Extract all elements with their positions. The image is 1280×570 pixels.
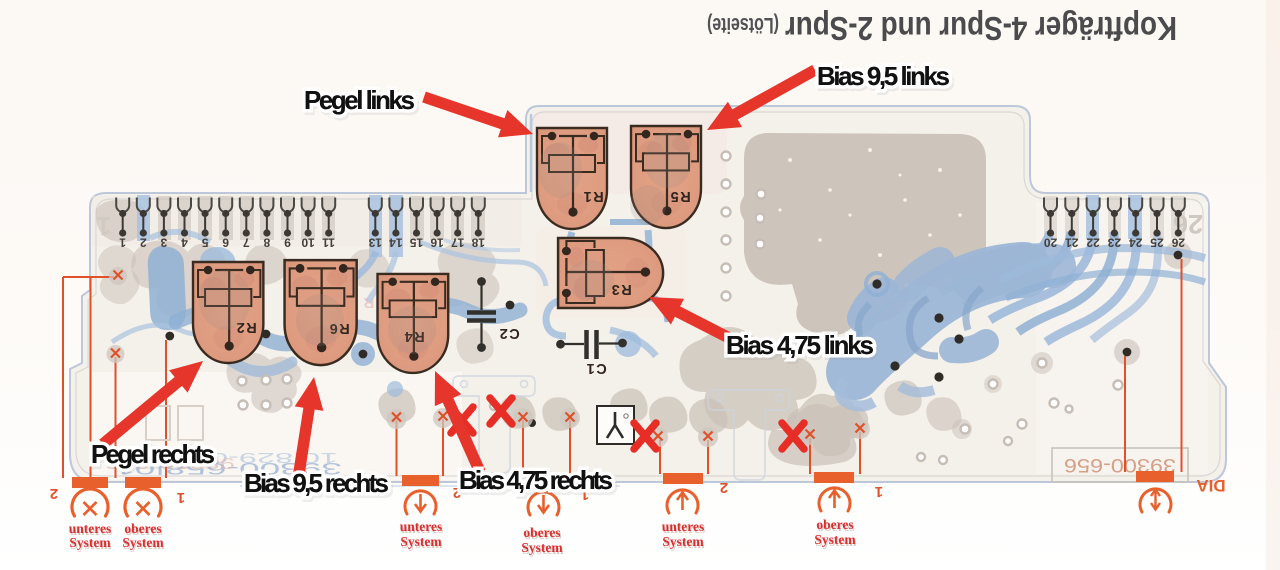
svg-text:2: 2 xyxy=(50,485,58,502)
svg-text:Bias 9,5 links: Bias 9,5 links xyxy=(817,61,950,91)
svg-text:unteres: unteres xyxy=(69,521,112,536)
svg-text:24: 24 xyxy=(1129,236,1143,250)
svg-text:oberes: oberes xyxy=(523,525,560,540)
svg-text:14: 14 xyxy=(389,236,403,250)
svg-text:2: 2 xyxy=(140,236,147,250)
svg-text:5: 5 xyxy=(201,236,208,250)
svg-text:16: 16 xyxy=(430,236,444,250)
svg-text:Bias 9,5 rechts: Bias 9,5 rechts xyxy=(244,468,389,498)
svg-text:3: 3 xyxy=(160,236,167,250)
svg-text:1: 1 xyxy=(96,211,111,241)
svg-text:20: 20 xyxy=(1044,236,1058,250)
svg-text:oberes: oberes xyxy=(124,521,161,536)
svg-text:15: 15 xyxy=(410,236,424,250)
svg-text:26: 26 xyxy=(1171,236,1185,250)
svg-text:C1: C1 xyxy=(585,360,607,376)
svg-text:11: 11 xyxy=(322,236,335,250)
svg-text:(Lötseite): (Lötseite) xyxy=(707,13,779,38)
svg-text:Bias 4,75 links: Bias 4,75 links xyxy=(726,330,874,360)
svg-text:System: System xyxy=(521,540,563,555)
svg-text:R5: R5 xyxy=(669,188,691,204)
svg-text:R1: R1 xyxy=(582,188,604,204)
svg-text:System: System xyxy=(814,532,856,547)
svg-text:6: 6 xyxy=(222,236,229,250)
svg-text:C2: C2 xyxy=(498,325,520,341)
svg-text:10: 10 xyxy=(301,236,315,250)
svg-text:Pegel rechts: Pegel rechts xyxy=(91,439,215,469)
svg-text:7: 7 xyxy=(243,236,250,250)
svg-text:Pegel links: Pegel links xyxy=(304,85,415,115)
svg-text:25: 25 xyxy=(1150,236,1164,250)
svg-text:2: 2 xyxy=(720,479,728,496)
svg-text:13: 13 xyxy=(368,236,382,250)
svg-text:23: 23 xyxy=(1107,236,1121,250)
svg-text:22: 22 xyxy=(1086,236,1100,250)
svg-text:4: 4 xyxy=(181,236,188,250)
svg-text:unteres: unteres xyxy=(662,519,705,534)
svg-text:DIA: DIA xyxy=(1196,476,1225,495)
svg-text:18: 18 xyxy=(471,236,485,250)
svg-text:17: 17 xyxy=(451,236,465,250)
svg-text:8: 8 xyxy=(263,236,270,250)
svg-text:System: System xyxy=(69,535,111,550)
svg-text:unteres: unteres xyxy=(400,519,443,534)
svg-text:Kopfträger 4-Spur und 2-Spur: Kopfträger 4-Spur und 2-Spur xyxy=(785,10,1177,47)
svg-text:System: System xyxy=(662,534,704,549)
svg-text:1: 1 xyxy=(177,489,185,506)
svg-text:R: R xyxy=(363,294,374,311)
svg-text:21: 21 xyxy=(1065,236,1079,250)
svg-text:System: System xyxy=(400,534,442,549)
svg-text:1: 1 xyxy=(875,483,883,500)
svg-text:9: 9 xyxy=(284,236,291,250)
svg-text:Bias 4,75 rechts: Bias 4,75 rechts xyxy=(459,465,613,495)
svg-text:oberes: oberes xyxy=(816,517,853,532)
svg-text:System: System xyxy=(122,535,164,550)
svg-text:1: 1 xyxy=(119,236,126,250)
